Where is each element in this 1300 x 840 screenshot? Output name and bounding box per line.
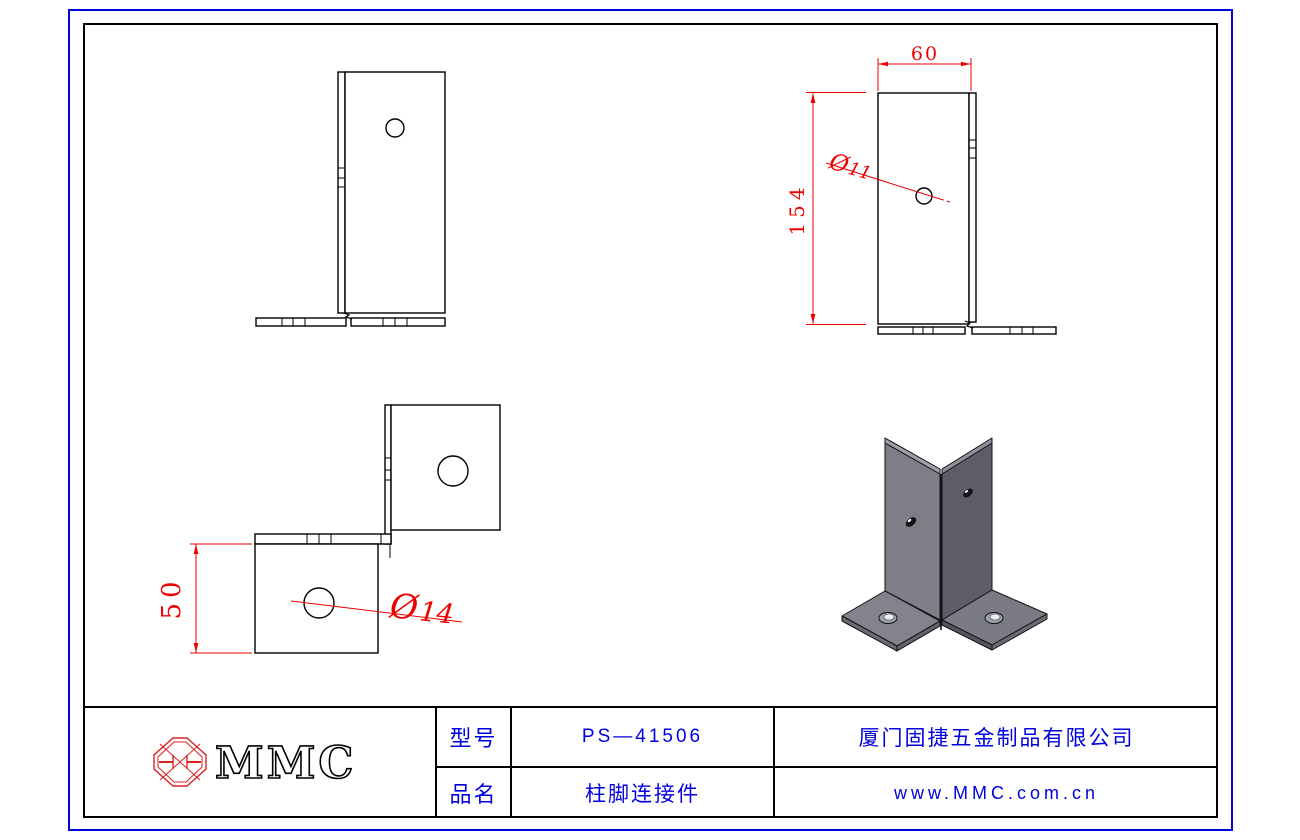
top-view bbox=[255, 405, 500, 653]
front-view bbox=[256, 72, 445, 326]
product-value-text: 柱脚连接件 bbox=[585, 778, 700, 808]
front-view-base-strip-left bbox=[256, 318, 346, 326]
model-value: PS—41506 bbox=[510, 708, 773, 766]
iso-right-plate bbox=[942, 443, 992, 620]
dim-side-height: 154 bbox=[785, 182, 809, 235]
logo-octagon-icon bbox=[154, 738, 206, 786]
website: www.MMC.com.cn bbox=[773, 766, 1218, 818]
top-view-upper-hole bbox=[438, 456, 468, 486]
model-label-text: 型号 bbox=[449, 721, 497, 753]
product-label-text: 品名 bbox=[449, 777, 497, 809]
dim-base-hole: Ø14 bbox=[387, 586, 456, 633]
logo-cell: MMC bbox=[83, 708, 435, 818]
side-view-plate bbox=[878, 93, 969, 324]
iso-view bbox=[842, 438, 1047, 651]
drawing-sheet: 60 154 Ø11 bbox=[0, 0, 1300, 840]
company-name-text: 厦门固捷五金制品有限公司 bbox=[859, 722, 1135, 752]
dim-base-height: 50 bbox=[157, 576, 187, 619]
side-view-base-strip-left bbox=[878, 327, 965, 334]
model-value-text: PS—41506 bbox=[582, 726, 703, 748]
top-view-lower-strip bbox=[255, 534, 391, 544]
dim-side-hole: Ø11 bbox=[825, 148, 874, 185]
logo-text: MMC bbox=[215, 738, 356, 789]
product-value: 柱脚连接件 bbox=[510, 766, 773, 818]
side-view-edge-strip bbox=[969, 93, 976, 322]
model-label: 型号 bbox=[435, 708, 510, 766]
front-view-edge-strip bbox=[338, 72, 345, 313]
front-view-plate bbox=[345, 72, 445, 313]
dim-top-width: 60 bbox=[911, 43, 939, 65]
website-text: www.MMC.com.cn bbox=[894, 783, 1099, 804]
side-view-base-strip-right bbox=[972, 327, 1056, 334]
company-name: 厦门固捷五金制品有限公司 bbox=[773, 708, 1218, 766]
iso-left-plate bbox=[885, 443, 940, 620]
side-view bbox=[878, 93, 1056, 334]
mmc-logo: MMC bbox=[149, 733, 369, 793]
front-view-base-strip-right bbox=[351, 318, 445, 326]
front-view-hole bbox=[386, 119, 404, 137]
product-label: 品名 bbox=[435, 766, 510, 818]
top-view-upper-strip bbox=[385, 405, 391, 544]
title-block: MMC 型号 PS—41506 厦门固捷五金制品有限公司 品名 柱脚连接件 ww… bbox=[83, 706, 1218, 818]
